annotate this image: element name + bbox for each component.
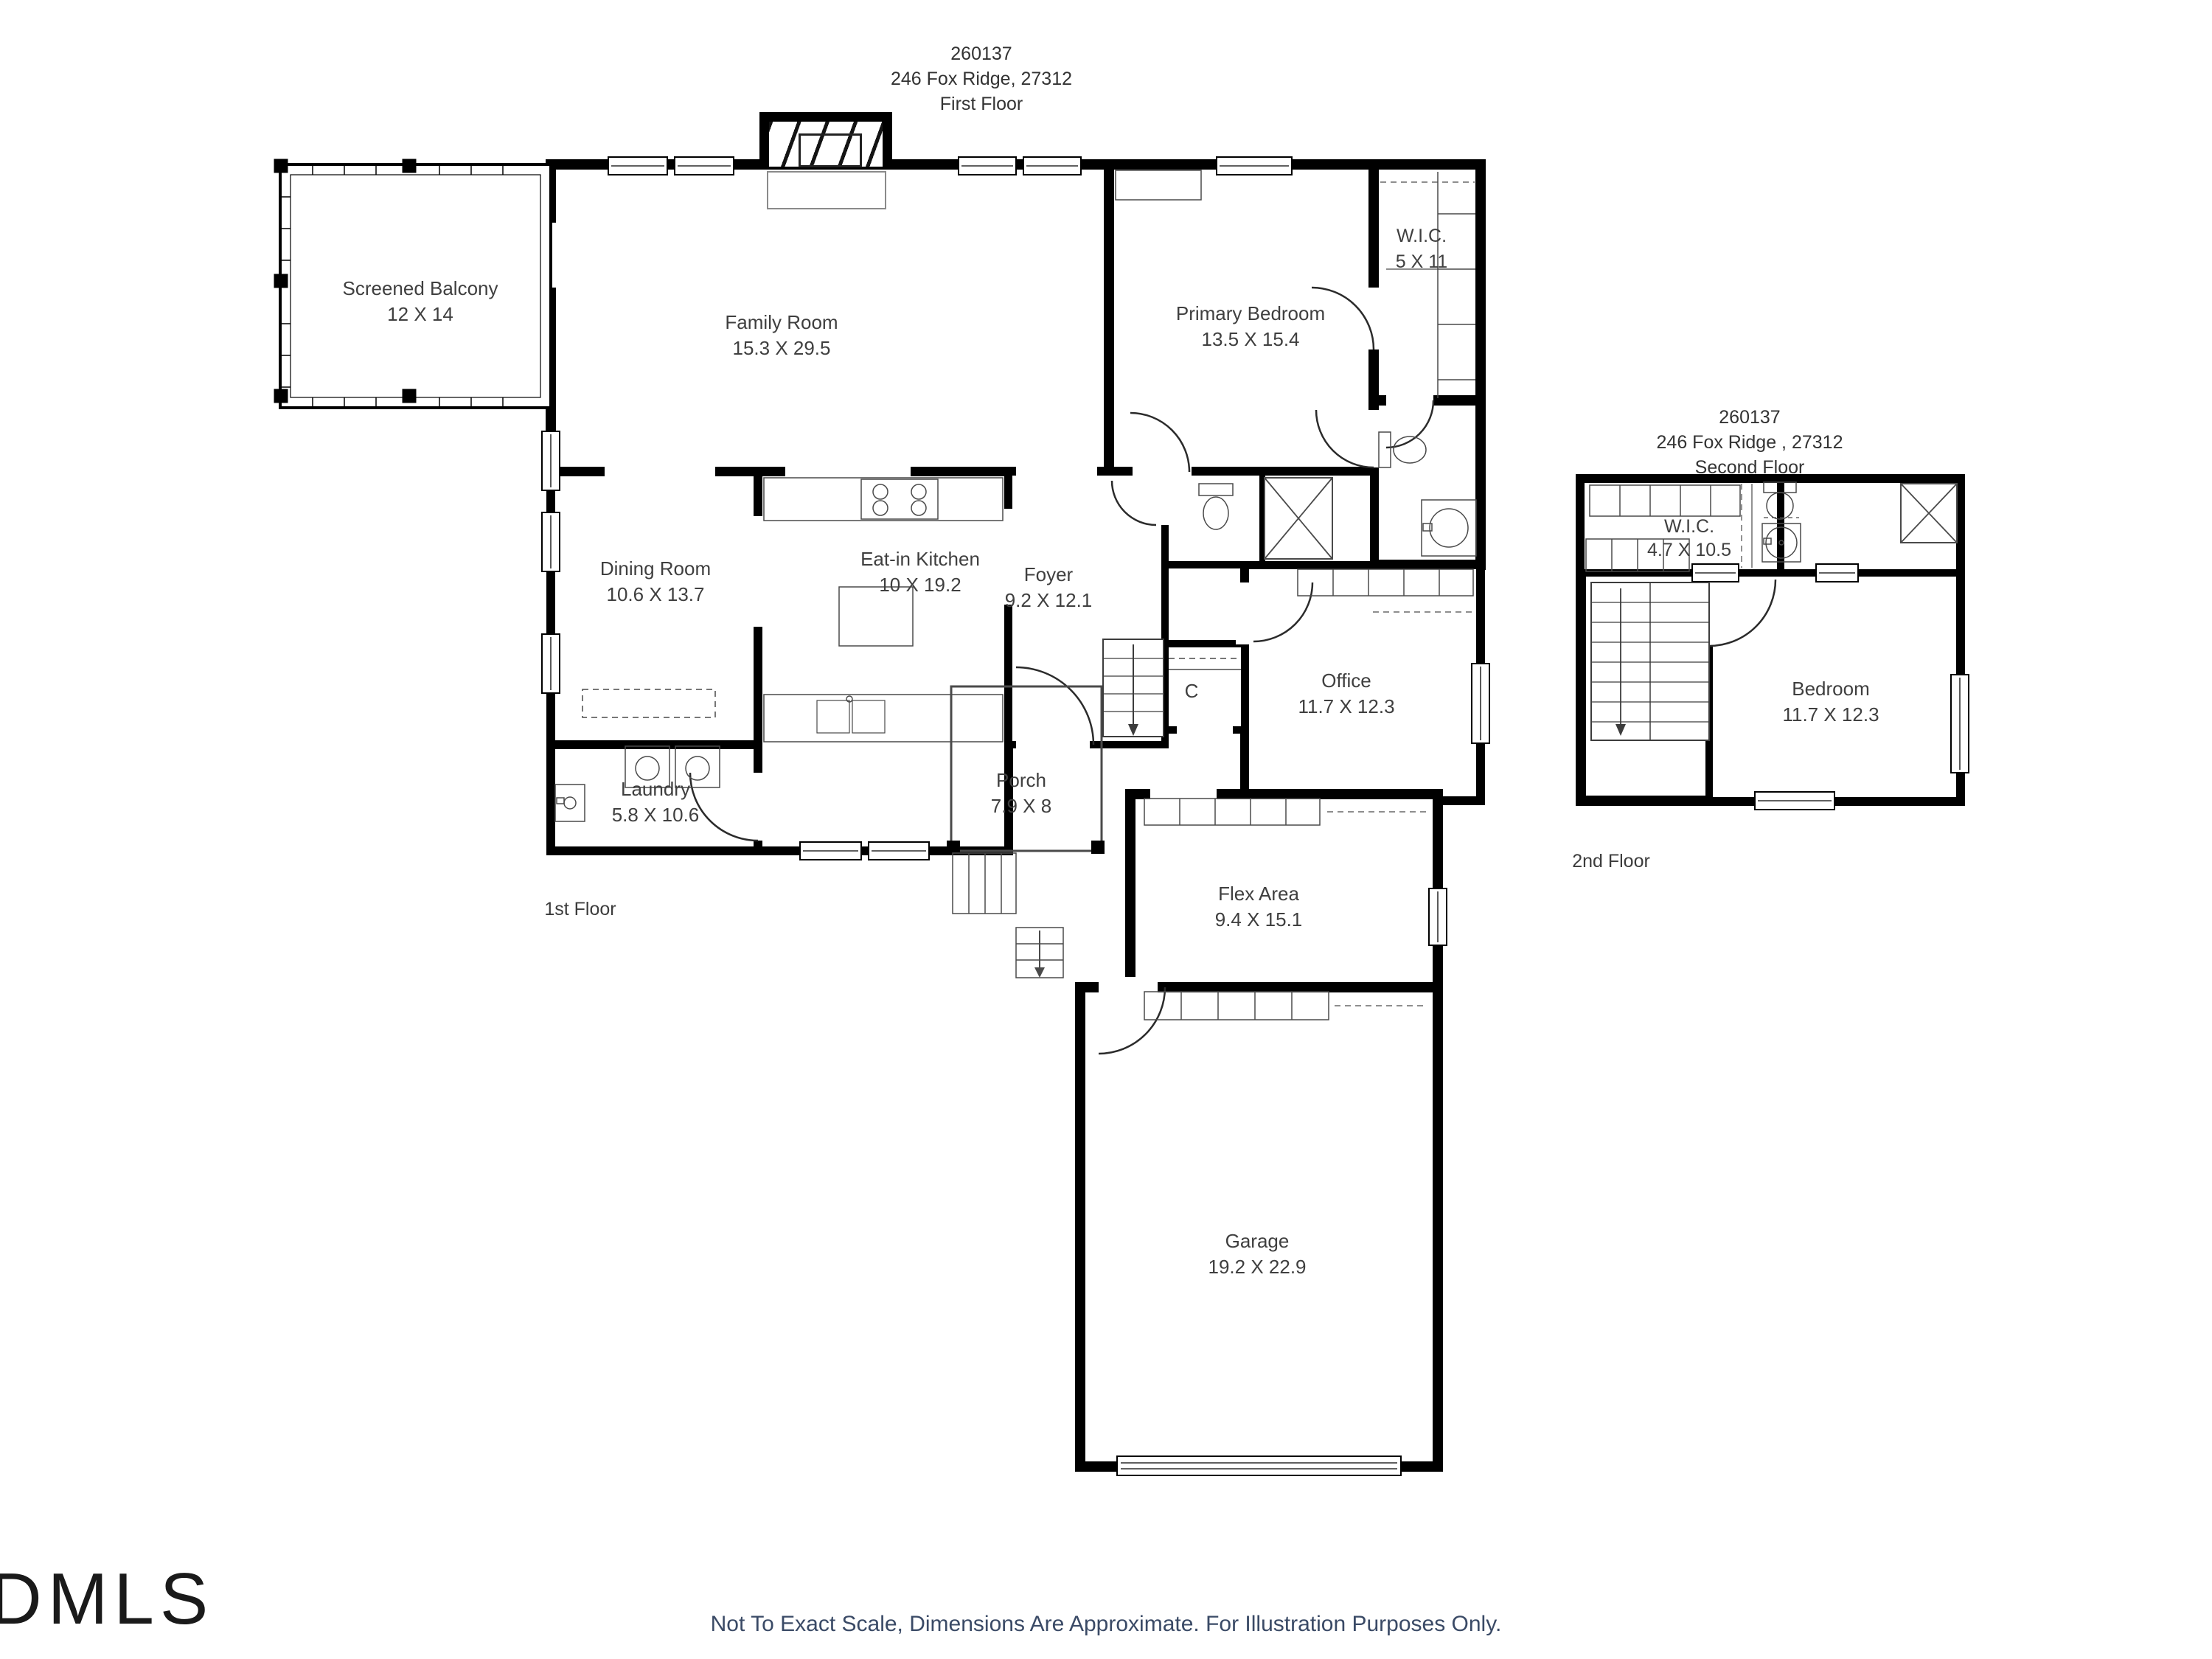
second-floor-header: 260137 246 Fox Ridge , 27312 Second Floo… xyxy=(1657,405,1843,480)
room-label-closet-c: C xyxy=(1185,678,1199,704)
floor-plan-sheet: 260137 246 Fox Ridge, 27312 First Floor … xyxy=(0,0,2212,1659)
first-floor-title: First Floor xyxy=(891,91,1072,116)
first-floor-map-label: 1st Floor xyxy=(544,899,616,920)
room-label-wic-second-floor: W.I.C. 4.7 X 10.5 xyxy=(1647,515,1731,562)
room-label-dining-room: Dining Room 10.6 X 13.7 xyxy=(600,556,711,608)
floor-plan-svg xyxy=(0,0,2212,1659)
room-label-eat-in-kitchen: Eat-in Kitchen 10 X 19.2 xyxy=(860,546,980,598)
first-floor-address: 246 Fox Ridge, 27312 xyxy=(891,66,1072,91)
stairs-first-floor xyxy=(1103,639,1164,737)
stairs-second-floor xyxy=(1591,582,1709,740)
room-label-wic-first-floor: W.I.C. 5 X 11 xyxy=(1396,223,1447,275)
fireplace-hearth xyxy=(767,171,886,209)
entry-steps xyxy=(953,853,1063,978)
room-label-flex-area: Flex Area 9.4 X 15.1 xyxy=(1215,881,1303,933)
room-label-primary-bedroom: Primary Bedroom 13.5 X 15.4 xyxy=(1176,301,1325,352)
disclaimer-text: Not To Exact Scale, Dimensions Are Appro… xyxy=(0,1612,2212,1637)
second-floor-title: Second Floor xyxy=(1657,455,1843,480)
first-floor-header: 260137 246 Fox Ridge, 27312 First Floor xyxy=(891,41,1072,116)
room-label-screened-balcony: Screened Balcony 12 X 14 xyxy=(342,276,498,327)
first-floor-mls-number: 260137 xyxy=(891,41,1072,66)
second-floor-address: 246 Fox Ridge , 27312 xyxy=(1657,430,1843,455)
second-floor-mls-number: 260137 xyxy=(1657,405,1843,430)
room-label-foyer: Foyer 9.2 X 12.1 xyxy=(1005,562,1093,613)
room-label-porch: Porch 7.9 X 8 xyxy=(991,768,1051,819)
primary-bedroom-builtin xyxy=(1116,170,1201,200)
garage-door xyxy=(1117,1456,1401,1475)
room-label-office: Office 11.7 X 12.3 xyxy=(1298,668,1394,720)
room-label-bedroom-second-floor: Bedroom 11.7 X 12.3 xyxy=(1782,676,1879,728)
room-label-family-room: Family Room 15.3 X 29.5 xyxy=(725,310,838,361)
fireplace xyxy=(759,112,892,170)
fireplace-firebox xyxy=(799,133,862,167)
second-floor-map-label: 2nd Floor xyxy=(1572,851,1650,872)
room-label-laundry: Laundry 5.8 X 10.6 xyxy=(612,776,700,828)
room-label-garage: Garage 19.2 X 22.9 xyxy=(1208,1228,1307,1280)
